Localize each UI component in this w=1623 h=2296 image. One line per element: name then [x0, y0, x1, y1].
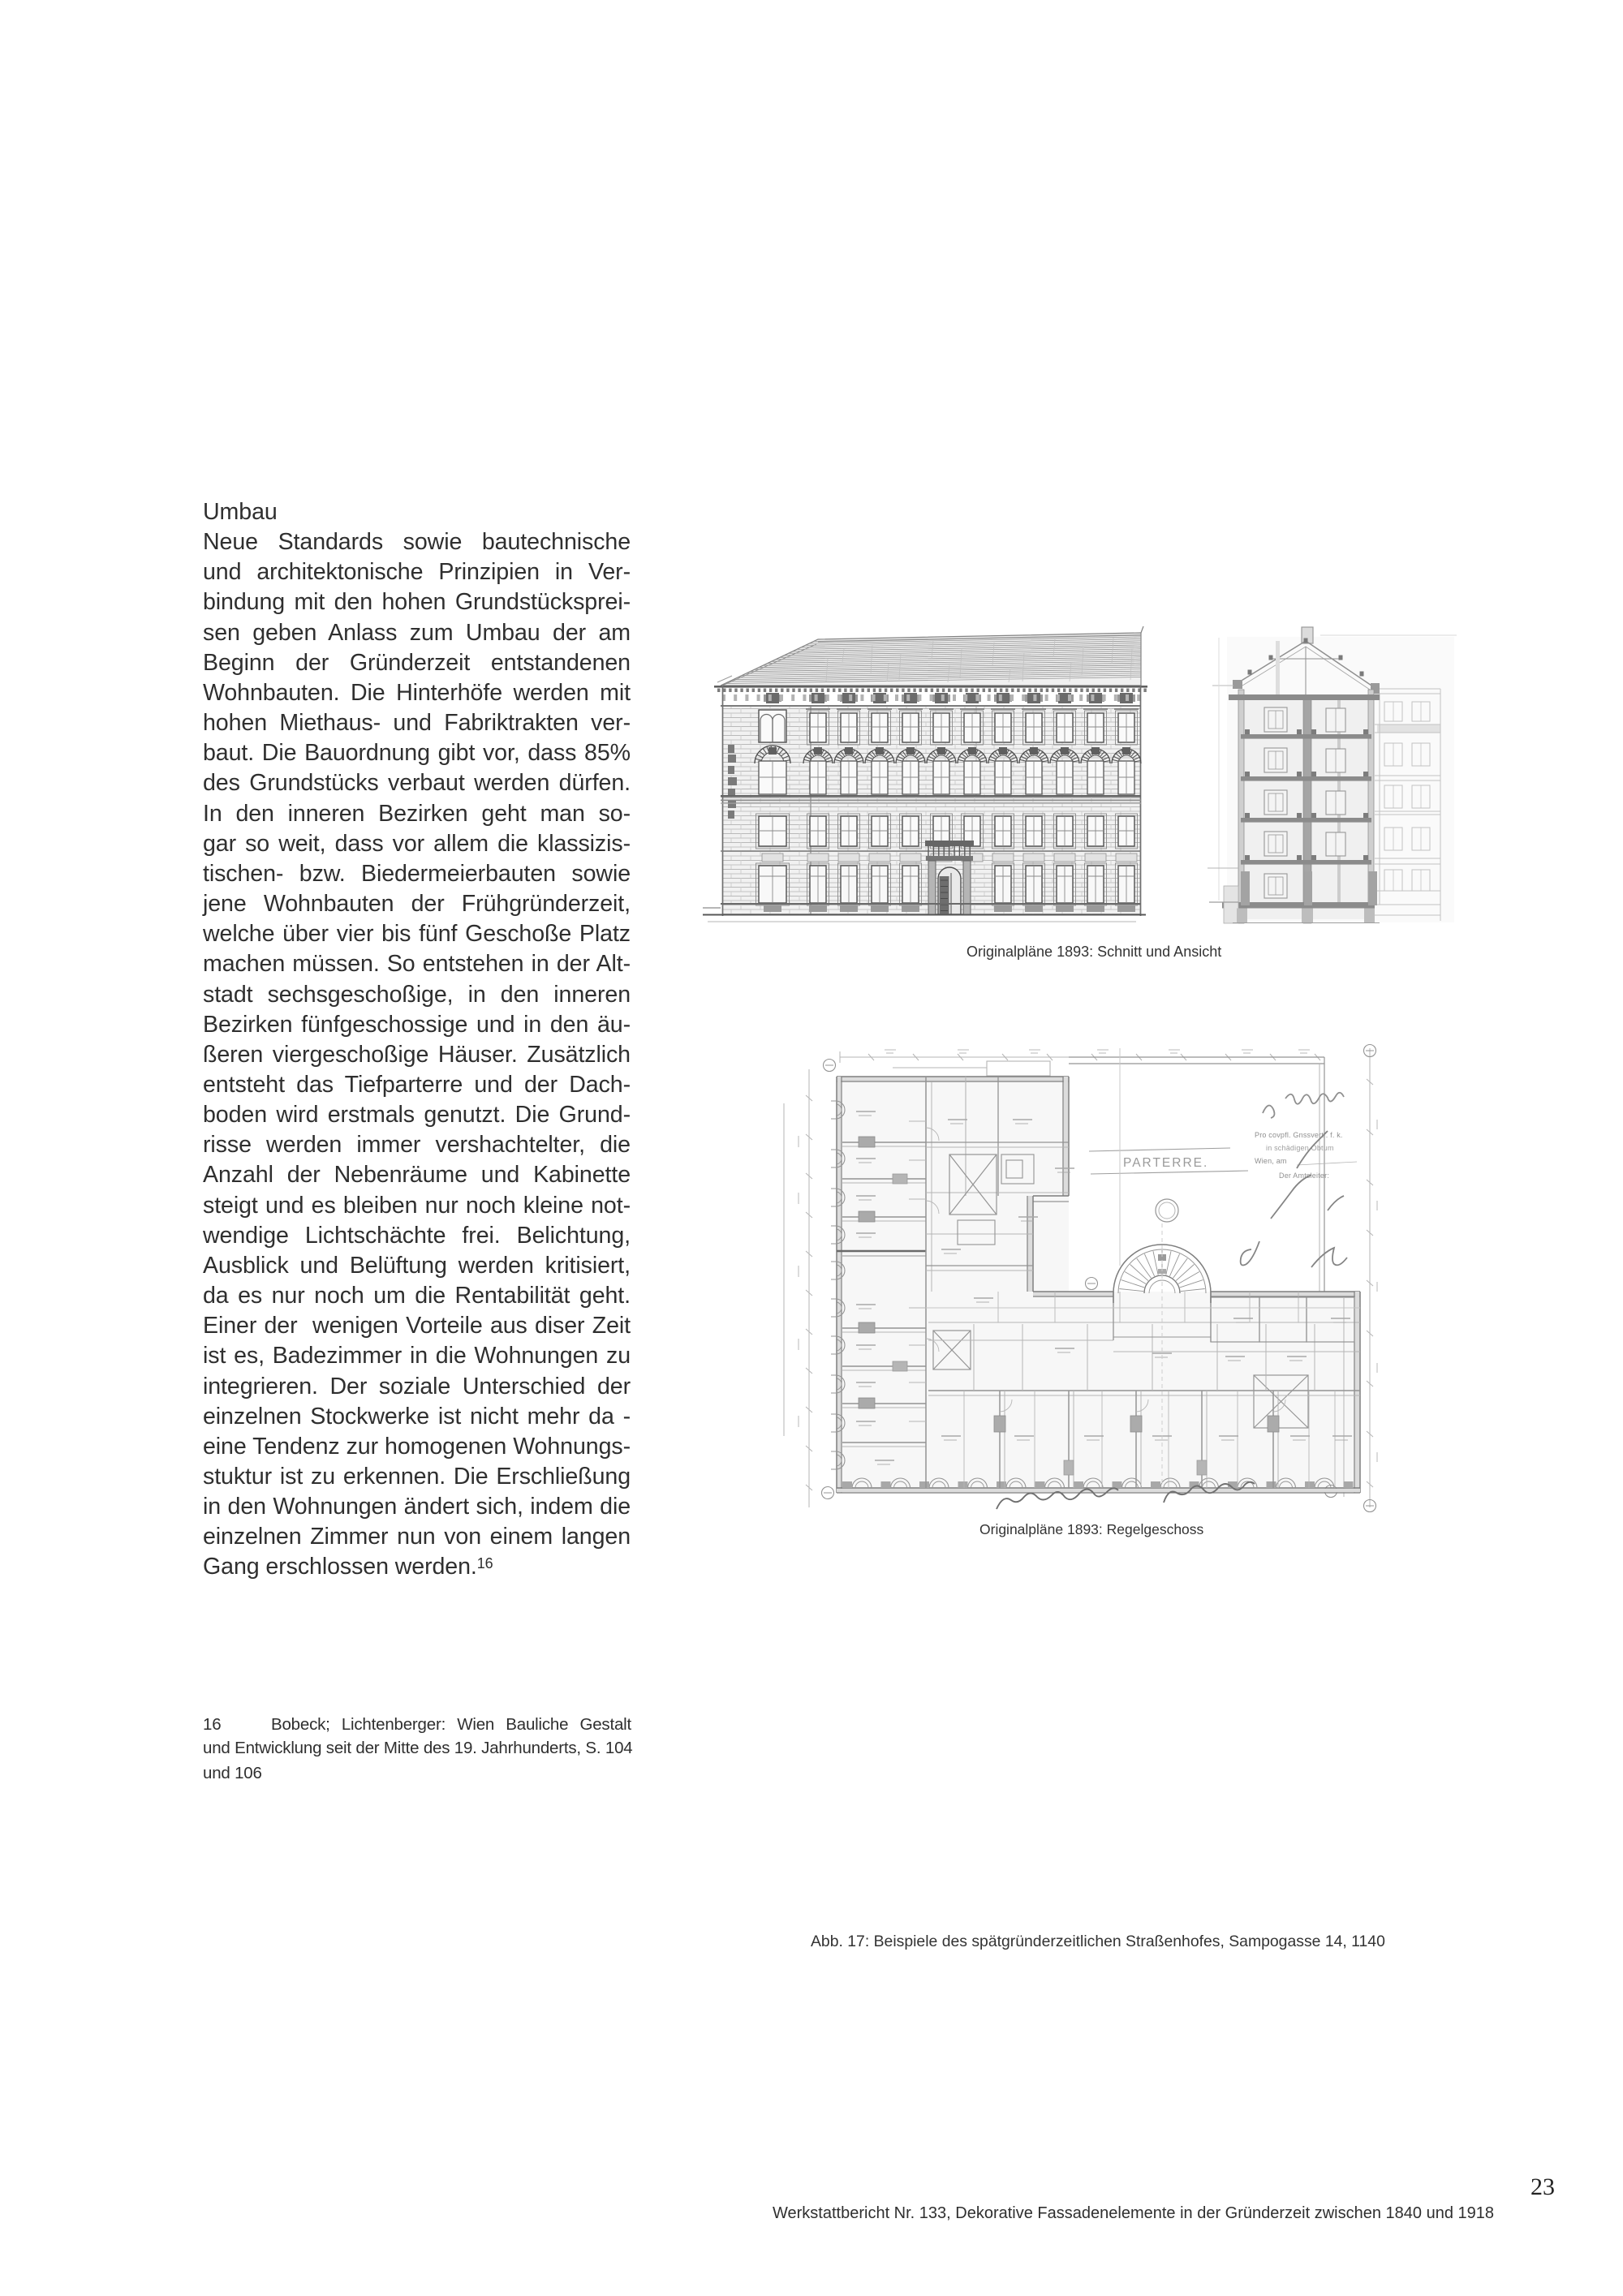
svg-text:in schädigen Obtum: in schädigen Obtum [1266, 1144, 1334, 1152]
svg-text:Pro covpfl. Gnssvertr. f. k.: Pro covpfl. Gnssvertr. f. k. [1255, 1131, 1343, 1139]
svg-text:Wien, am: Wien, am [1255, 1157, 1287, 1165]
svg-text:PARTERRE.: PARTERRE. [1123, 1156, 1208, 1170]
